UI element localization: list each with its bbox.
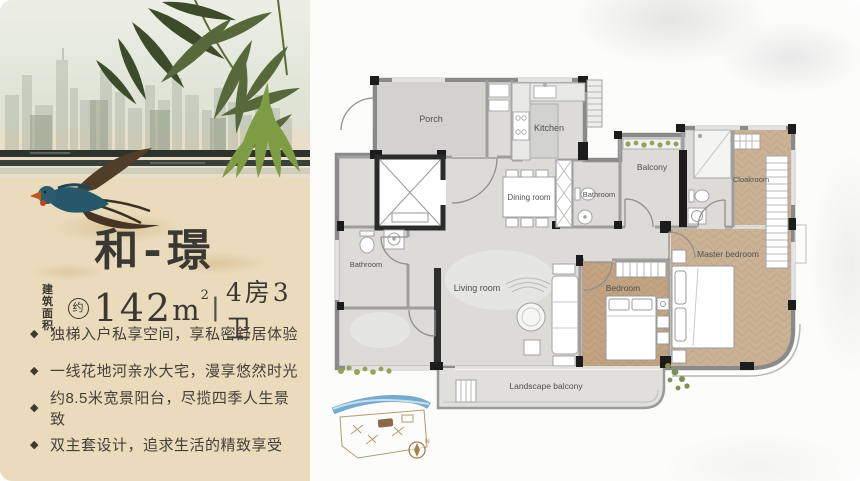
- bamboo-leaves-dark: [94, 0, 237, 109]
- sky-background: [0, 0, 310, 138]
- room-label-bathroom-middle: Bathroom: [583, 190, 616, 199]
- city-skyline-front: [30, 48, 280, 152]
- balcony-planter: [623, 139, 681, 149]
- selling-point-text: 约8.5米宽景阳台，尽揽四季人生景致: [50, 387, 302, 429]
- room-label-master-bedroom: Master bedroom: [697, 249, 759, 259]
- wall-masterbath-west: [679, 150, 687, 227]
- ac-ledge-hatch: [587, 80, 602, 127]
- diamond-bullet-icon: ◆: [30, 438, 39, 451]
- river-band: [0, 150, 310, 174]
- diamond-bullet-icon: ◆: [30, 364, 39, 377]
- bamboo-stems: [195, 0, 287, 85]
- project-title: 和-璟: [0, 214, 310, 278]
- list-item: ◆ 约8.5米宽景阳台，尽揽四季人生景致: [30, 389, 302, 426]
- entry-closet: [489, 84, 509, 111]
- room-label-landscape-balcony: Landscape balcony: [509, 381, 583, 391]
- room-label-balcony: Balcony: [637, 162, 668, 172]
- list-item: ◆ 一线花地河亲水大宅，漫享悠然时光: [30, 352, 302, 389]
- bamboo-leaves-mid: [154, 9, 302, 161]
- selling-point-text: 双主套设计，追求生活的精致享受: [50, 434, 283, 455]
- left-panel: 和-璟 建筑 面积 约 142 m 2 | 4房3卫 ◆ 独梯入户私享空间，享私…: [0, 0, 310, 481]
- diamond-bullet-icon: ◆: [30, 327, 39, 340]
- bamboo-leaves-bright: [217, 82, 303, 180]
- poster-canvas: 和-璟 建筑 面积 约 142 m 2 | 4房3卫 ◆ 独梯入户私享空间，享私…: [0, 0, 860, 481]
- room-label-dining-room: Dining room: [507, 193, 550, 202]
- selling-points-list: ◆ 独梯入户私享空间，享私密舒居体验 ◆ 一线花地河亲水大宅，漫享悠然时光 ◆ …: [30, 315, 302, 463]
- selling-point-text: 独梯入户私享空间，享私密舒居体验: [50, 323, 298, 344]
- shore-band: [0, 130, 310, 178]
- floor-plan: Porch Kitchen Balcony Bathroom Cloakroom…: [332, 45, 828, 470]
- room-label-living-room: Living room: [454, 283, 501, 293]
- city-skyline-back: [5, 60, 292, 152]
- selling-point-text: 一线花地河亲水大宅，漫享悠然时光: [50, 360, 298, 381]
- exterior-ac-ledge: [795, 225, 806, 263]
- room-label-kitchen: Kitchen: [534, 123, 564, 133]
- list-item: ◆ 双主套设计，追求生活的精致享受: [30, 426, 302, 463]
- area-unit-sup: 2: [201, 288, 209, 303]
- room-label-bathroom-left: Bathroom: [350, 260, 383, 269]
- list-item: ◆ 独梯入户私享空间，享私密舒居体验: [30, 315, 302, 352]
- room-label-cloakroom: Cloakroom: [733, 175, 769, 184]
- compass-north-label: N: [425, 438, 430, 445]
- duct-shaft: [556, 160, 572, 227]
- compass: N: [409, 438, 430, 458]
- elevator: [377, 157, 443, 228]
- room-label-porch: Porch: [419, 114, 443, 124]
- room-label-bedroom: Bedroom: [606, 283, 641, 293]
- diamond-bullet-icon: ◆: [30, 401, 39, 414]
- master-bed: [672, 250, 734, 363]
